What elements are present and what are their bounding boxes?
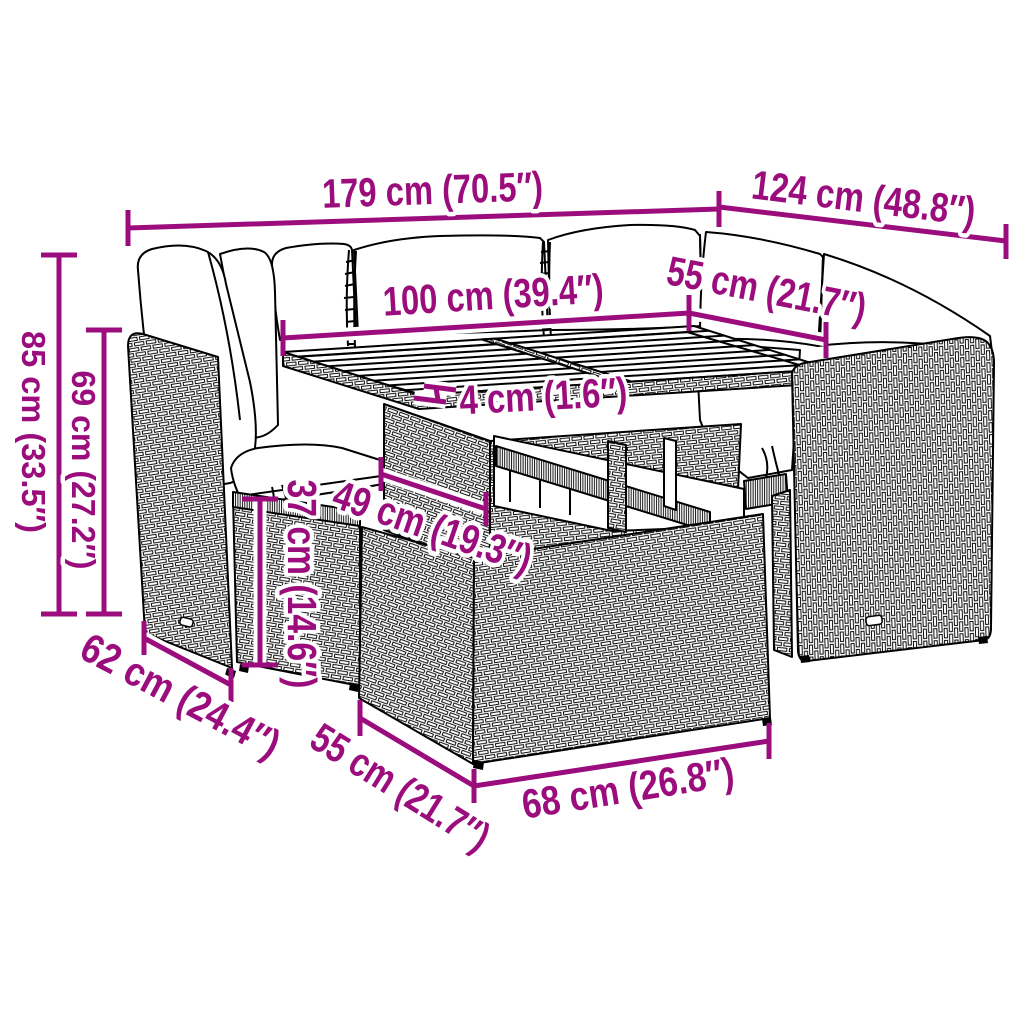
svg-text:85 cm (33.5″): 85 cm (33.5″) [15, 331, 52, 533]
svg-text:4 cm (1.6″): 4 cm (1.6″) [458, 369, 628, 424]
svg-text:69 cm (27.2″): 69 cm (27.2″) [65, 371, 102, 570]
svg-text:37 cm (14.6″): 37 cm (14.6″) [279, 480, 325, 689]
svg-text:179 cm (70.5″): 179 cm (70.5″) [321, 163, 543, 217]
